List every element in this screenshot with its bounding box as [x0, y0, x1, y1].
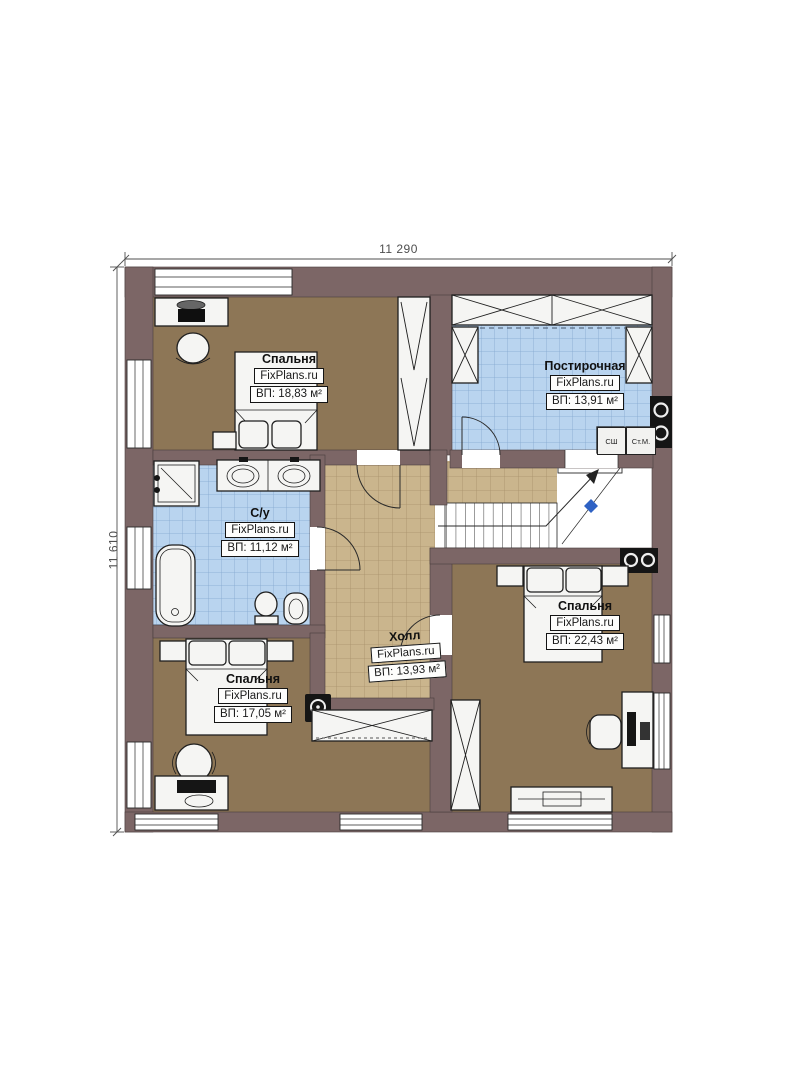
desk	[622, 692, 653, 768]
window-bottom-bedroom-right	[508, 814, 612, 830]
area-label: ВП: 11,12 м²	[221, 540, 298, 556]
room-name: Холл	[389, 628, 421, 644]
pillow	[527, 568, 563, 592]
area-label: ВП: 18,83 м²	[250, 386, 328, 402]
room-label-bedroom-top-left: Спальня FixPlans.ru ВП: 18,83 м²	[231, 352, 347, 403]
drying-cabinet-label: СШ	[597, 427, 626, 455]
brand-label: FixPlans.ru	[550, 375, 620, 391]
area-label: ВП: 13,91 м²	[546, 393, 624, 409]
desk	[155, 776, 228, 810]
washing-machine-label: Ст.М.	[626, 427, 656, 455]
room-name: Спальня	[226, 672, 280, 686]
wall-stair-stub	[430, 450, 447, 505]
desk	[155, 298, 228, 326]
room-name: Спальня	[262, 352, 316, 366]
wall-laundry-west	[430, 295, 452, 455]
monitor-icon	[177, 780, 216, 793]
floor-bedroom-bottom-left-ext	[310, 740, 434, 815]
room-name: Спальня	[558, 599, 612, 613]
brand-label: FixPlans.ru	[218, 688, 288, 704]
nightstand	[160, 641, 186, 661]
double-vanity	[217, 457, 320, 491]
shower	[154, 461, 199, 506]
room-label-bedroom-right: Спальня FixPlans.ru ВП: 22,43 м²	[527, 599, 643, 650]
floor-plan: 11 290 11 610 Спальня FixPlans.ru ВП: 18…	[0, 0, 792, 1080]
faucet-icon	[239, 457, 248, 462]
hall-wardrobe	[312, 710, 432, 741]
window-right-lower	[654, 693, 670, 769]
office-chair	[587, 715, 622, 749]
opening-laundry	[462, 450, 500, 468]
room-label-hall: Холл FixPlans.ru ВП: 13,93 м²	[345, 625, 466, 684]
pillow	[272, 421, 301, 448]
opening-bedroom1	[357, 450, 400, 465]
window-bottom-bedroom3	[135, 814, 218, 830]
area-label: ВП: 22,43 м²	[546, 633, 624, 649]
brand-label: FixPlans.ru	[550, 615, 620, 631]
window-left-bedroom3	[127, 742, 151, 808]
room-name: Постирочная	[544, 359, 625, 373]
brand-label: FixPlans.ru	[254, 368, 324, 384]
wardrobe	[451, 700, 480, 810]
bathtub	[156, 545, 195, 626]
nightstand	[497, 566, 523, 586]
wall-under-stairs	[430, 548, 653, 564]
wardrobe-louvered	[398, 297, 430, 450]
nightstand	[213, 432, 236, 449]
window-bottom-center	[340, 814, 422, 830]
room-name: С/у	[250, 506, 269, 520]
window-top	[155, 269, 292, 295]
wall-hall-east	[430, 548, 452, 812]
wall-bathroom-south	[153, 625, 325, 638]
brand-label: FixPlans.ru	[371, 643, 442, 664]
nightstand	[267, 641, 293, 661]
dimension-height-label: 11 610	[107, 277, 121, 824]
room-label-bedroom-bottom-left: Спальня FixPlans.ru ВП: 17,05 м²	[194, 672, 312, 723]
bidet	[284, 593, 308, 624]
room-label-laundry: Постирочная FixPlans.ru ВП: 13,91 м²	[524, 359, 646, 410]
brand-label: FixPlans.ru	[225, 522, 295, 538]
toilet	[255, 592, 278, 624]
dimension-width-label: 11 290	[125, 242, 672, 256]
window-left-bathroom	[127, 527, 151, 589]
monitor-icon	[627, 712, 636, 746]
faucet-icon	[290, 457, 299, 462]
window-right-upper	[654, 615, 670, 663]
window-left-bedroom1	[127, 360, 151, 448]
area-label: ВП: 17,05 м²	[214, 706, 292, 722]
pillow	[566, 568, 601, 592]
pillow	[189, 641, 226, 665]
storage-cabinets-top	[452, 295, 652, 325]
printer-icon	[177, 301, 205, 310]
storage-cabinet-left	[452, 327, 478, 383]
hall-furniture	[312, 710, 432, 741]
room-label-bathroom: С/у FixPlans.ru ВП: 11,12 м²	[202, 506, 318, 557]
nightstand	[602, 566, 628, 586]
pillow	[229, 641, 265, 665]
tv-dresser	[511, 787, 612, 812]
pillow	[239, 421, 268, 448]
